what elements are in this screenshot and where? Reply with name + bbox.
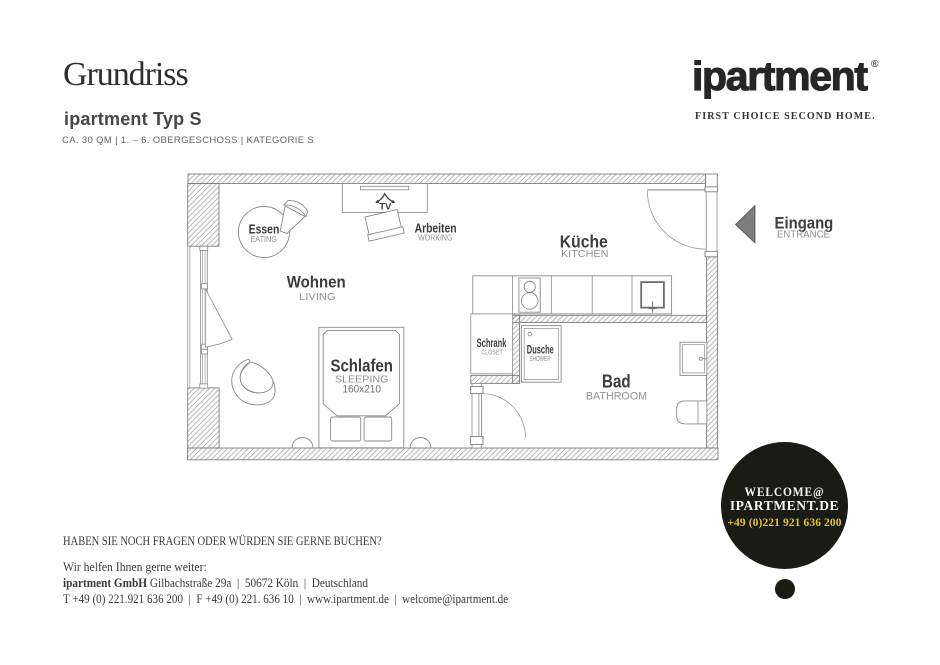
svg-text:Wohnen: Wohnen xyxy=(287,273,346,292)
svg-text:Schlafen: Schlafen xyxy=(330,356,393,376)
svg-text:SHOWER: SHOWER xyxy=(529,354,551,363)
svg-text:Bad: Bad xyxy=(602,372,631,392)
svg-text:TV: TV xyxy=(379,201,392,212)
svg-text:ENTRANCE: ENTRANCE xyxy=(777,229,830,240)
svg-text:EATING: EATING xyxy=(250,235,277,244)
svg-text:WORKING: WORKING xyxy=(418,233,452,243)
svg-text:CLOSET: CLOSET xyxy=(481,348,503,357)
svg-text:LIVING: LIVING xyxy=(299,292,336,303)
svg-text:KITCHEN: KITCHEN xyxy=(561,249,609,260)
svg-text:BATHROOM: BATHROOM xyxy=(586,391,647,403)
svg-text:160x210: 160x210 xyxy=(342,384,381,396)
